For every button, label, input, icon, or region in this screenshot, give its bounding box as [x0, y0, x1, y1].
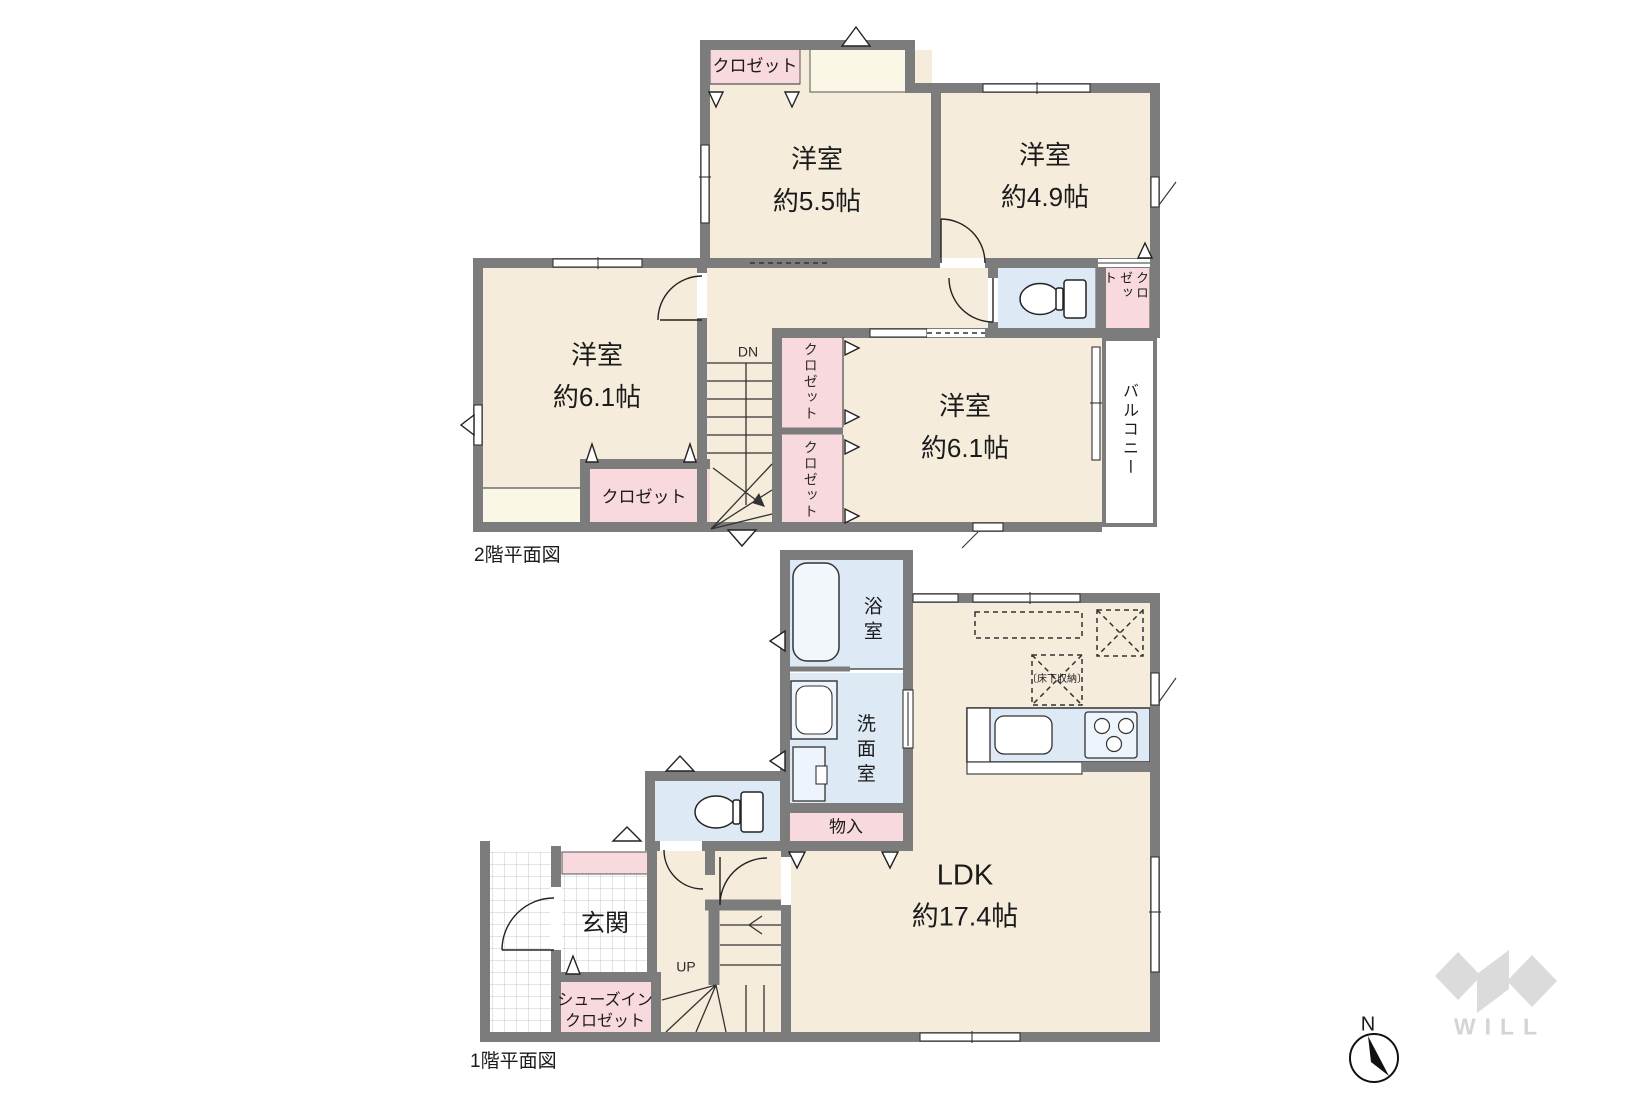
room-6_1l-label: 洋室 約6.1帖: [553, 339, 641, 413]
will-logo-icon: [1435, 950, 1557, 1013]
washbasin-icon: [793, 747, 827, 801]
underfloor-storage-label: 〔床下収納〕: [1027, 674, 1087, 687]
ldk-size: 約17.4帖: [912, 901, 1019, 935]
floor1-title: 1階平面図: [470, 1050, 557, 1074]
hall1f-floor: [652, 851, 791, 1032]
entrance-closet-floor: [562, 852, 648, 874]
closet-top-label: クロゼット: [713, 55, 798, 76]
closet-bottom-label: クロゼット: [602, 486, 687, 507]
kitchen-counter: [967, 708, 1152, 774]
storage-label: 物入: [829, 816, 863, 837]
compass-north-label: N: [1361, 1013, 1375, 1038]
bath-label: 浴室: [859, 596, 883, 646]
room-4_9-label: 洋室 約4.9帖: [1001, 139, 1089, 213]
stairs-up-label: UP: [676, 958, 695, 976]
room-6_1r-label: 洋室 約6.1帖: [921, 390, 1009, 464]
room-5_5-size: 約5.5帖: [773, 185, 861, 218]
porch-tiles: [490, 852, 552, 1032]
ldk-label: LDK 約17.4帖: [912, 858, 1019, 935]
washroom-label: 洗面室: [852, 714, 876, 789]
room-4_9-size: 約4.9帖: [1001, 181, 1089, 214]
compass: [1350, 1034, 1398, 1082]
shoe-closet-label: シューズイン クロゼット: [557, 990, 652, 1032]
floor1-plan: [480, 550, 1176, 1043]
closet-v1-label: クロゼット: [801, 342, 819, 422]
kitchen-sink-icon: [995, 716, 1052, 754]
shoe-closet-line2: クロゼット: [557, 1011, 652, 1032]
washing-machine-icon: [791, 681, 837, 739]
bathtub-icon: [793, 563, 839, 661]
room-6_1l-name: 洋室: [571, 339, 623, 372]
storage2f-top-floor: [810, 47, 906, 92]
closet-v2-label: クロゼット: [801, 440, 819, 520]
floorplan-page: クロゼット 洋室 約5.5帖 洋室 約4.9帖 クロゼット バルコニー クロゼッ…: [0, 0, 1639, 1093]
closet-right-label: クロゼット: [1101, 271, 1149, 313]
room-6_1r-name: 洋室: [939, 390, 991, 423]
ldk-name: LDK: [937, 858, 993, 894]
stairs-down-label: DN: [738, 343, 758, 361]
stove-icon: [1085, 712, 1137, 758]
entrance-label: 玄関: [581, 909, 629, 939]
will-logo-text: WILL: [1454, 1013, 1546, 1042]
room-6_1l-size: 約6.1帖: [553, 381, 641, 414]
shoe-closet-line1: シューズイン: [557, 990, 652, 1011]
room-5_5-name: 洋室: [791, 143, 843, 176]
room-4_9-name: 洋室: [1019, 139, 1071, 172]
balcony-label: バルコニー: [1118, 383, 1138, 478]
alcove2f-floor: [483, 488, 580, 527]
room-5_5-label: 洋室 約5.5帖: [773, 143, 861, 217]
room-6_1r-size: 約6.1帖: [921, 432, 1009, 465]
floor2-title: 2階平面図: [474, 544, 561, 568]
